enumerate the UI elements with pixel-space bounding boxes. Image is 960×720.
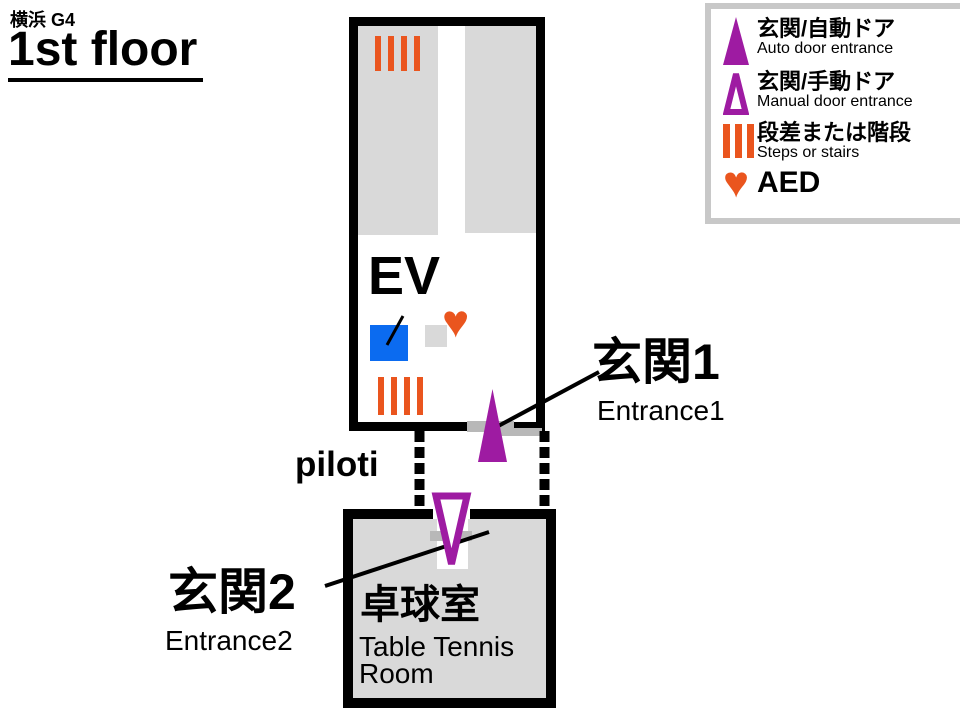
elevator-icon [370, 325, 408, 361]
entrance2-wall-opening [433, 509, 470, 519]
stairs-icon-top [375, 36, 420, 71]
legend-label-jp: 玄関/自動ドア [757, 17, 895, 41]
entrance2-label-en: Entrance2 [165, 626, 293, 656]
legend-item-aed: ♥ AED [723, 166, 957, 200]
aed-heart-icon: ♥ [723, 166, 757, 200]
room-name-en: Table Tennis Room [359, 633, 549, 687]
legend-label-en: Manual door entrance [757, 94, 913, 110]
elevator-label: EV [368, 248, 440, 304]
legend: 玄関/自動ドア Auto door entrance 玄関/手動ドア Manua… [705, 3, 960, 224]
auto-door-entrance-icon [723, 17, 757, 65]
legend-label-jp: 段差または階段 [757, 121, 911, 145]
entrance2-label-jp: 玄関2 [168, 564, 296, 620]
aed-heart-icon: ♥ [442, 298, 469, 344]
room-name-jp: 卓球室 [360, 583, 480, 627]
legend-label-en: Auto door entrance [757, 41, 895, 57]
stairs-icon-bottom [378, 377, 423, 415]
legend-label-aed: AED [757, 166, 820, 200]
entrance1-label-en: Entrance1 [597, 396, 725, 426]
entrance2-door-icon [430, 531, 472, 541]
legend-item-manual-door: 玄関/手動ドア Manual door entrance [723, 70, 957, 116]
entrance1-door-icon [498, 428, 542, 436]
page-title: 1st floor [8, 24, 203, 82]
entrance2-vestibule [437, 519, 468, 569]
room-block-right [465, 26, 536, 233]
steps-or-stairs-icon [723, 121, 757, 158]
entrance1-label-jp: 玄関1 [592, 334, 720, 390]
legend-item-auto-door: 玄関/自動ドア Auto door entrance [723, 17, 957, 65]
floor-map-page: 横浜 G4 1st floor 玄関/自動ドア Auto door entran… [0, 0, 960, 720]
piloti-label: piloti [295, 446, 379, 484]
legend-label-jp: 玄関/手動ドア [757, 70, 913, 94]
manual-door-entrance-icon [723, 70, 757, 116]
legend-label-en: Steps or stairs [757, 145, 911, 161]
main-building: EV ♥ [349, 17, 545, 431]
legend-item-steps: 段差または階段 Steps or stairs [723, 121, 957, 161]
